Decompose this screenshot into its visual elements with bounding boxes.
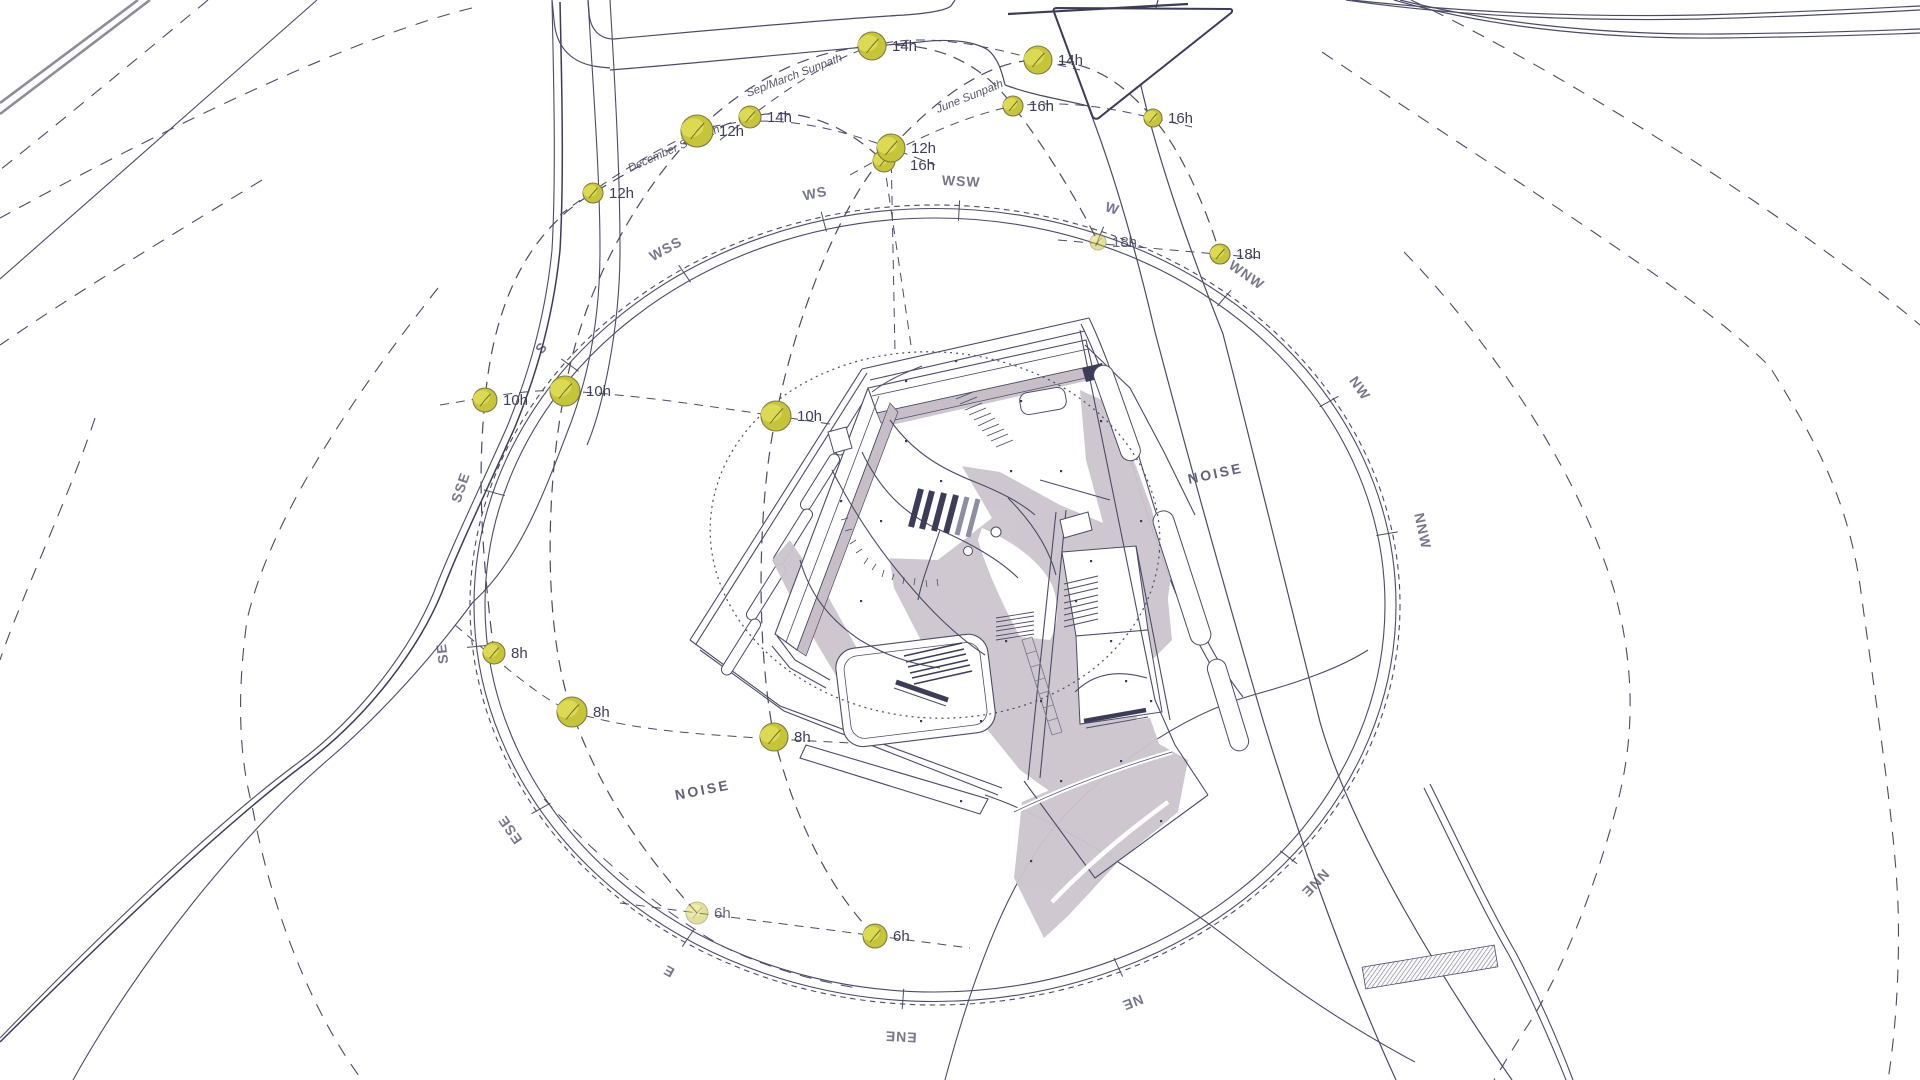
svg-text:14h: 14h: [1058, 52, 1083, 69]
svg-text:18h: 18h: [1236, 246, 1261, 263]
svg-text:14h: 14h: [767, 109, 792, 126]
svg-text:SE: SE: [433, 642, 451, 664]
svg-text:8h: 8h: [511, 645, 528, 662]
svg-text:16h: 16h: [1029, 98, 1054, 115]
svg-text:WSW: WSW: [941, 172, 981, 190]
svg-text:16h: 16h: [1168, 110, 1193, 127]
svg-text:8h: 8h: [794, 729, 811, 746]
svg-text:10h: 10h: [797, 408, 822, 425]
svg-text:6h: 6h: [714, 905, 731, 922]
svg-text:14h: 14h: [892, 38, 917, 55]
svg-text:10h: 10h: [503, 392, 528, 409]
svg-text:12h: 12h: [911, 140, 936, 157]
svg-text:ENE: ENE: [884, 1028, 917, 1046]
svg-text:16h: 16h: [910, 157, 935, 174]
svg-text:18h: 18h: [1112, 234, 1137, 251]
svg-text:10h: 10h: [586, 383, 611, 400]
svg-text:12h: 12h: [609, 185, 634, 202]
svg-text:12h: 12h: [719, 123, 744, 140]
svg-text:8h: 8h: [593, 704, 610, 721]
svg-text:6h: 6h: [893, 928, 910, 945]
